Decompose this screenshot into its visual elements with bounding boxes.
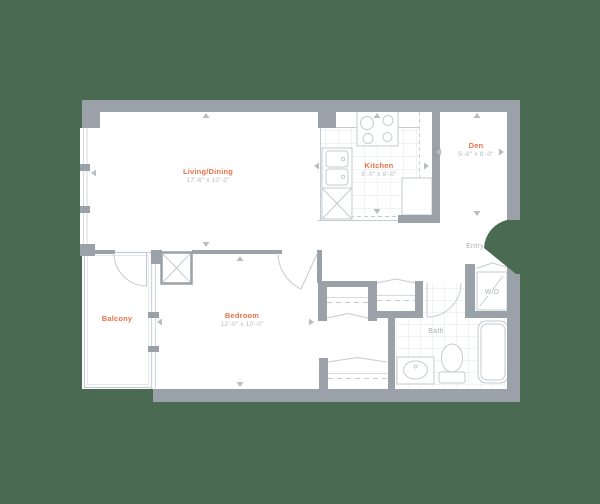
floorplan-stage: Living/Dining 17'-6" x 10'-2" Kitchen 8'… xyxy=(0,0,600,504)
room-label-bedroom: Bedroom 12'-0" x 10'-0" xyxy=(221,311,264,329)
floorplan-drawing xyxy=(0,0,600,504)
area-label-bath: Bath xyxy=(428,328,444,335)
bedroom-entry-closet xyxy=(162,253,192,284)
room-dims: 8'-0" x 8'-0" xyxy=(361,171,396,179)
room-name: Living/Dining xyxy=(183,167,233,177)
room-name: Bedroom xyxy=(221,311,264,321)
room-label-living: Living/Dining 17'-6" x 10'-2" xyxy=(183,167,233,185)
kitchen-counter xyxy=(402,178,432,215)
kitchen-sink-icon xyxy=(322,148,352,188)
bathtub-icon xyxy=(478,321,508,383)
room-dims: 5'-8" x 8'-0" xyxy=(458,151,493,159)
dishwasher-icon xyxy=(322,188,352,219)
room-name: Balcony xyxy=(102,314,133,324)
area-label-wd: W/D xyxy=(484,289,501,296)
living-window-band xyxy=(80,128,90,250)
room-label-den: Den 5'-8" x 8'-0" xyxy=(458,141,493,159)
room-label-balcony: Balcony xyxy=(102,314,133,324)
area-label-entry: Entry xyxy=(466,243,484,250)
bedroom-window-band xyxy=(149,263,159,389)
room-dims: 17'-6" x 10'-2" xyxy=(183,177,233,185)
bath-sink-icon xyxy=(397,357,434,384)
room-dims: 12'-0" x 10'-0" xyxy=(221,321,264,329)
room-label-kitchen: Kitchen 8'-0" x 8'-0" xyxy=(361,161,396,179)
toilet-icon xyxy=(439,344,465,383)
room-name: Den xyxy=(458,141,493,151)
room-name: Kitchen xyxy=(361,161,396,171)
